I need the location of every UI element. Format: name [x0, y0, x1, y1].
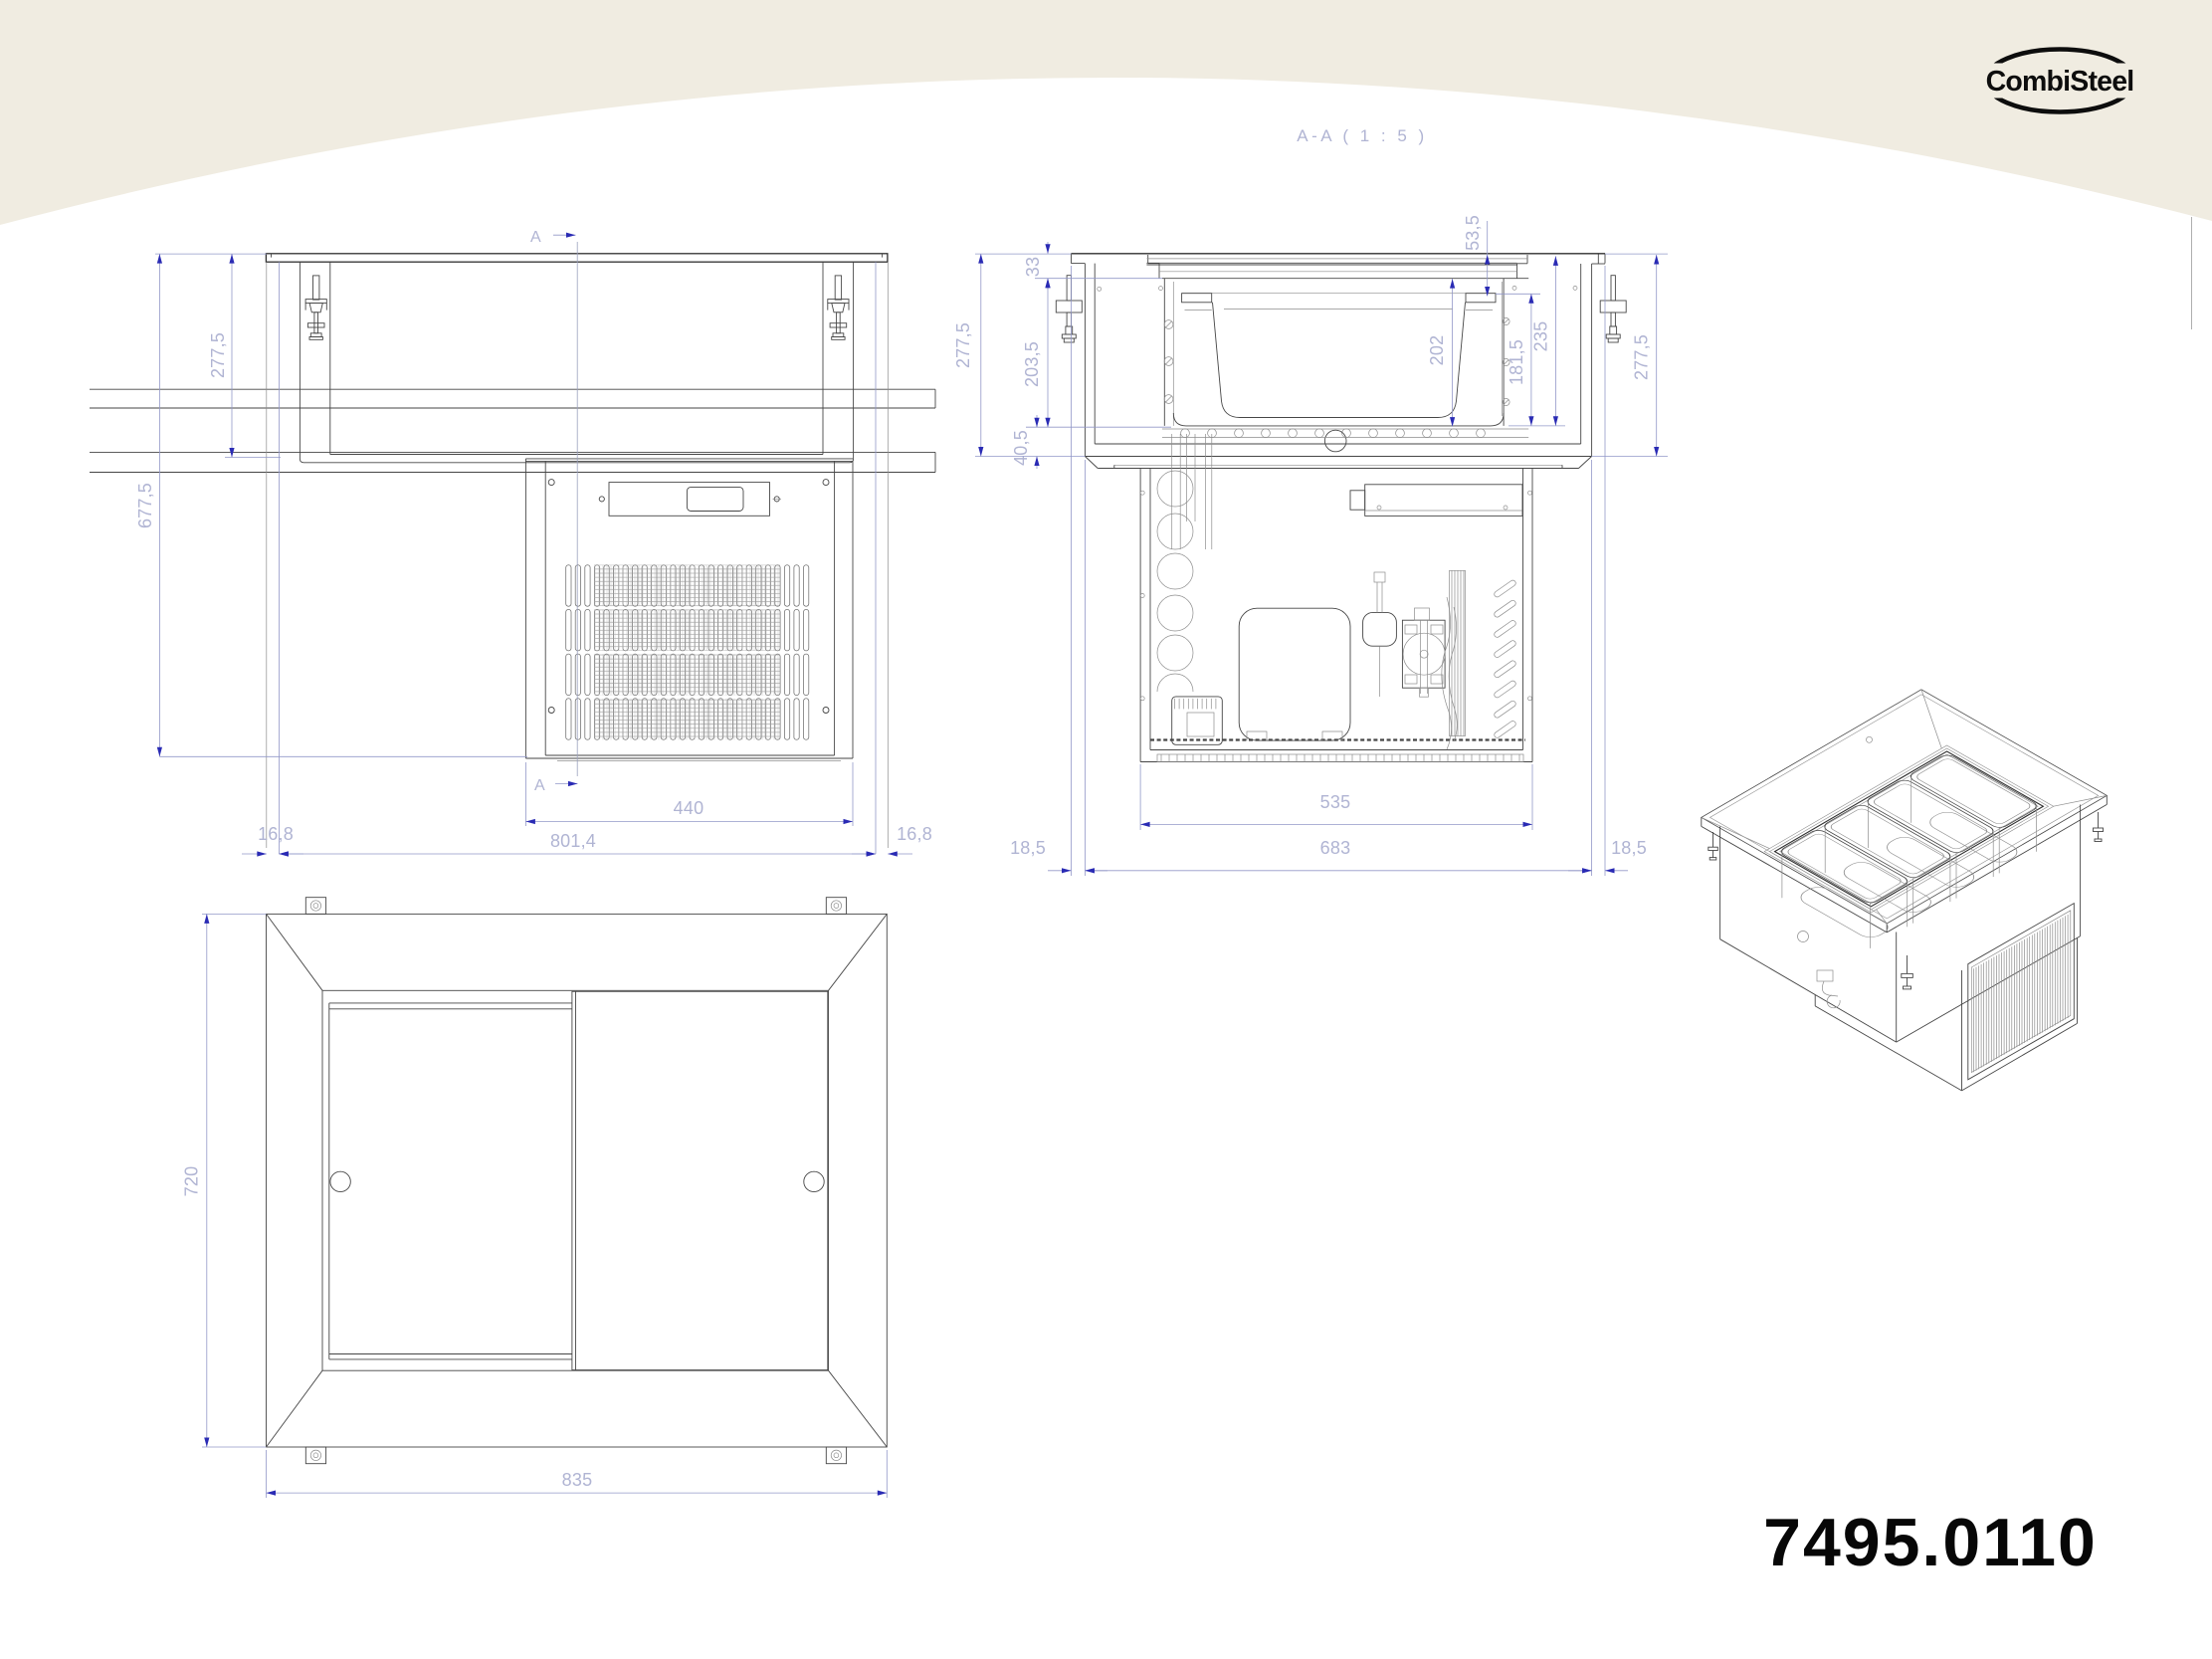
svg-text:40,5: 40,5 [1011, 430, 1031, 466]
svg-text:A-A ( 1 : 5 ): A-A ( 1 : 5 ) [1297, 126, 1427, 145]
svg-text:683: 683 [1320, 838, 1351, 858]
svg-text:235: 235 [1531, 321, 1551, 352]
svg-text:203,5: 203,5 [1022, 341, 1042, 387]
svg-text:720: 720 [182, 1166, 202, 1197]
svg-text:18,5: 18,5 [1611, 838, 1647, 858]
svg-text:277,5: 277,5 [1632, 334, 1652, 380]
svg-text:A: A [534, 777, 545, 794]
svg-text:801,4: 801,4 [550, 831, 596, 851]
svg-text:535: 535 [1320, 792, 1351, 812]
svg-text:835: 835 [562, 1470, 593, 1490]
svg-text:53,5: 53,5 [1463, 215, 1483, 251]
svg-text:181,5: 181,5 [1507, 339, 1526, 385]
svg-text:277,5: 277,5 [208, 332, 228, 378]
svg-text:33: 33 [1023, 257, 1043, 277]
svg-text:202: 202 [1427, 335, 1447, 366]
svg-text:677,5: 677,5 [135, 483, 155, 528]
svg-text:16,8: 16,8 [897, 824, 932, 844]
svg-text:CombiSteel: CombiSteel [1986, 66, 2134, 98]
svg-text:277,5: 277,5 [953, 322, 973, 368]
svg-text:16,8: 16,8 [258, 824, 294, 844]
svg-text:440: 440 [674, 798, 704, 818]
svg-text:18,5: 18,5 [1010, 838, 1046, 858]
svg-text:7495.0110: 7495.0110 [1763, 1505, 2098, 1580]
svg-text:A: A [530, 229, 541, 246]
